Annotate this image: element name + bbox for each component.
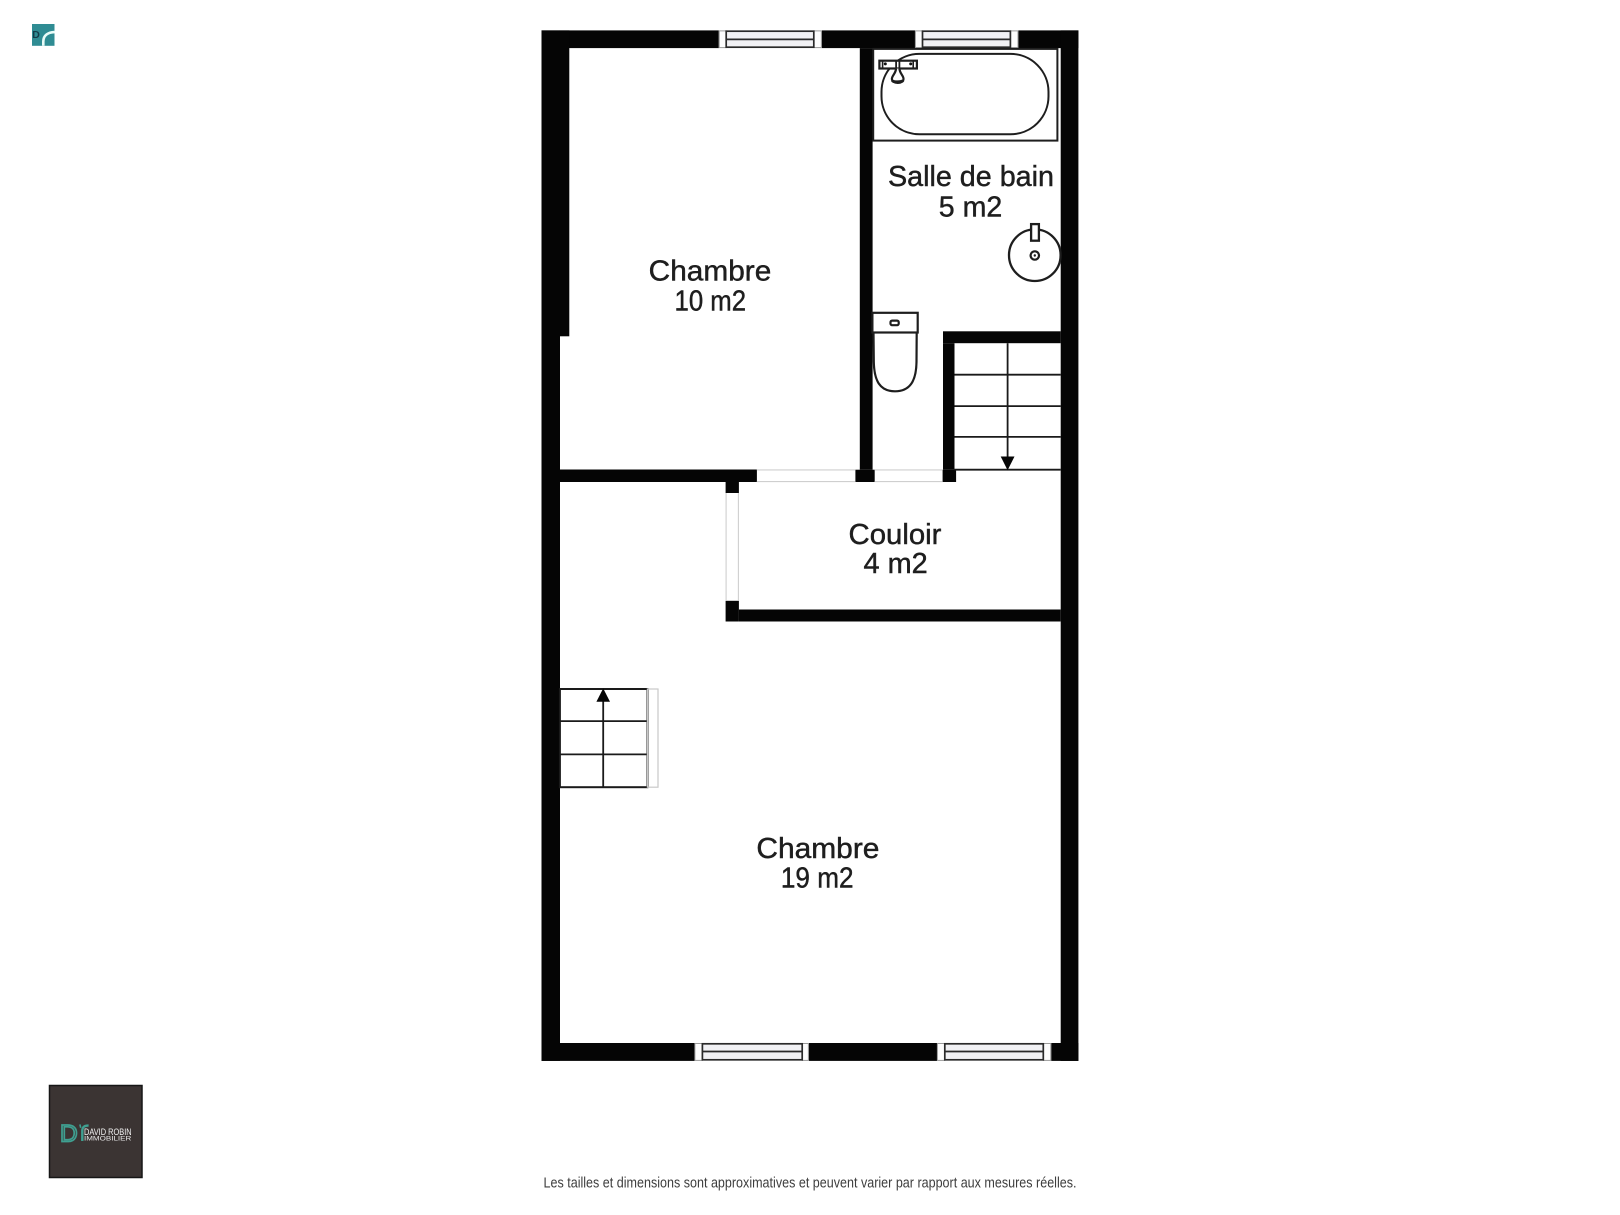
- svg-text:Les tailles et dimensions sont: Les tailles et dimensions sont approxima…: [544, 1175, 1077, 1191]
- svg-text:IMMOBILIER: IMMOBILIER: [84, 1136, 132, 1142]
- svg-text:D: D: [60, 1120, 78, 1147]
- svg-text:Chambre: Chambre: [756, 833, 879, 865]
- svg-text:5 m2: 5 m2: [939, 191, 1003, 223]
- svg-text:Couloir: Couloir: [849, 519, 942, 551]
- svg-text:Salle de bain: Salle de bain: [888, 161, 1054, 193]
- svg-text:D: D: [32, 29, 40, 41]
- svg-text:19 m2: 19 m2: [781, 862, 854, 894]
- svg-text:DAVID ROBIN: DAVID ROBIN: [84, 1127, 132, 1137]
- svg-text:Chambre: Chambre: [649, 256, 772, 288]
- svg-text:10 m2: 10 m2: [675, 285, 747, 317]
- svg-text:4 m2: 4 m2: [864, 548, 928, 580]
